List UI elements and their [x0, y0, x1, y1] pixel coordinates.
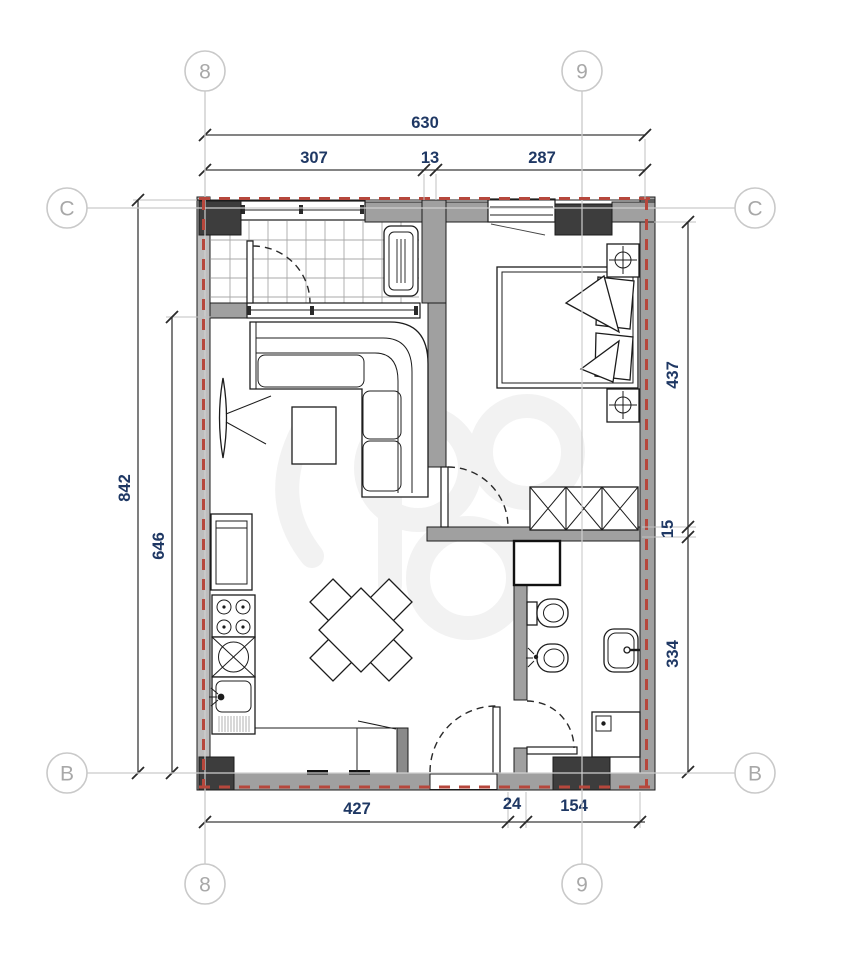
bathroom-wall-upper — [514, 585, 527, 700]
nightstand-lamp-icon — [607, 244, 639, 277]
dim-bottom-seg-3: 154 — [560, 797, 588, 815]
svg-text:B: B — [748, 763, 762, 786]
svg-text:B: B — [60, 763, 74, 786]
bathroom-wall-stub — [514, 748, 527, 773]
living-bedroom-wall — [428, 303, 446, 467]
dim-top-seg-1: 307 — [300, 149, 328, 167]
bathroom — [526, 599, 640, 757]
top-wall-right — [612, 202, 655, 222]
cabinet-x-icon — [212, 637, 255, 677]
bidet-icon — [526, 644, 568, 672]
stove-burners-icon — [212, 595, 255, 637]
coffee-table-icon — [292, 407, 336, 464]
balcony-door — [247, 241, 310, 303]
dim-left-outer: 842 — [116, 474, 134, 502]
dining-set — [310, 579, 412, 681]
svg-text:8: 8 — [199, 874, 211, 897]
balcony-partition-left — [210, 303, 247, 318]
grid-marker-C-left: C — [47, 188, 87, 228]
ac-unit-icon — [384, 226, 418, 296]
svg-text:9: 9 — [576, 61, 588, 84]
grid-marker-9-bottom: 9 — [562, 864, 602, 904]
vent-shaft-icon — [514, 541, 560, 585]
dim-bottom-seg-1: 427 — [343, 800, 371, 818]
bedroom-window — [488, 199, 555, 235]
grid-marker-B-right: B — [735, 753, 775, 793]
washing-machine-icon — [592, 712, 640, 757]
balcony-glazing-window — [240, 201, 365, 220]
double-bed-icon — [497, 267, 638, 388]
dim-right-seg-2: 15 — [659, 520, 677, 538]
svg-text:C: C — [59, 198, 74, 221]
washbasin-icon — [604, 629, 640, 672]
kitchen-sink-icon — [209, 677, 255, 734]
grid-marker-8-bottom: 8 — [185, 864, 225, 904]
svg-text:8: 8 — [199, 61, 211, 84]
counter-run — [255, 721, 397, 772]
svg-text:9: 9 — [576, 874, 588, 897]
dim-top-seg-3: 287 — [528, 149, 556, 167]
nightstand-lamp-icon — [607, 389, 639, 422]
dim-top-seg-2: 13 — [421, 149, 439, 167]
dim-left-inner: 646 — [150, 532, 168, 560]
tv-panel-icon — [220, 378, 272, 458]
grid-marker-9-top: 9 — [562, 51, 602, 91]
floor-plan-sheet: 630 307 13 287 842 646 437 15 334 427 24… — [0, 0, 841, 960]
grid-marker-B-left: B — [47, 753, 87, 793]
dim-bottom-seg-2: 24 — [503, 795, 522, 813]
toilet-icon — [527, 599, 568, 627]
bathroom-door — [527, 701, 577, 754]
wall-socket-mark — [349, 770, 370, 775]
balcony-bedroom-divider — [422, 200, 446, 303]
svg-text:C: C — [747, 198, 762, 221]
entry-door-swing-icon — [430, 706, 500, 773]
wall-socket-mark — [307, 770, 328, 775]
refrigerator-icon — [211, 514, 252, 590]
dim-right-seg-3: 334 — [664, 639, 682, 667]
kitchen-wall-stub — [397, 728, 408, 773]
floor-plan-drawing: 630 307 13 287 842 646 437 15 334 427 24… — [0, 0, 841, 960]
wardrobe-x-icon — [530, 487, 638, 530]
grid-marker-C-right: C — [735, 188, 775, 228]
pier-top-right — [555, 204, 612, 235]
grid-marker-8-top: 8 — [185, 51, 225, 91]
balcony-door-window-band — [247, 303, 420, 318]
dim-top-total: 630 — [411, 114, 439, 132]
dim-right-seg-1: 437 — [664, 361, 682, 389]
